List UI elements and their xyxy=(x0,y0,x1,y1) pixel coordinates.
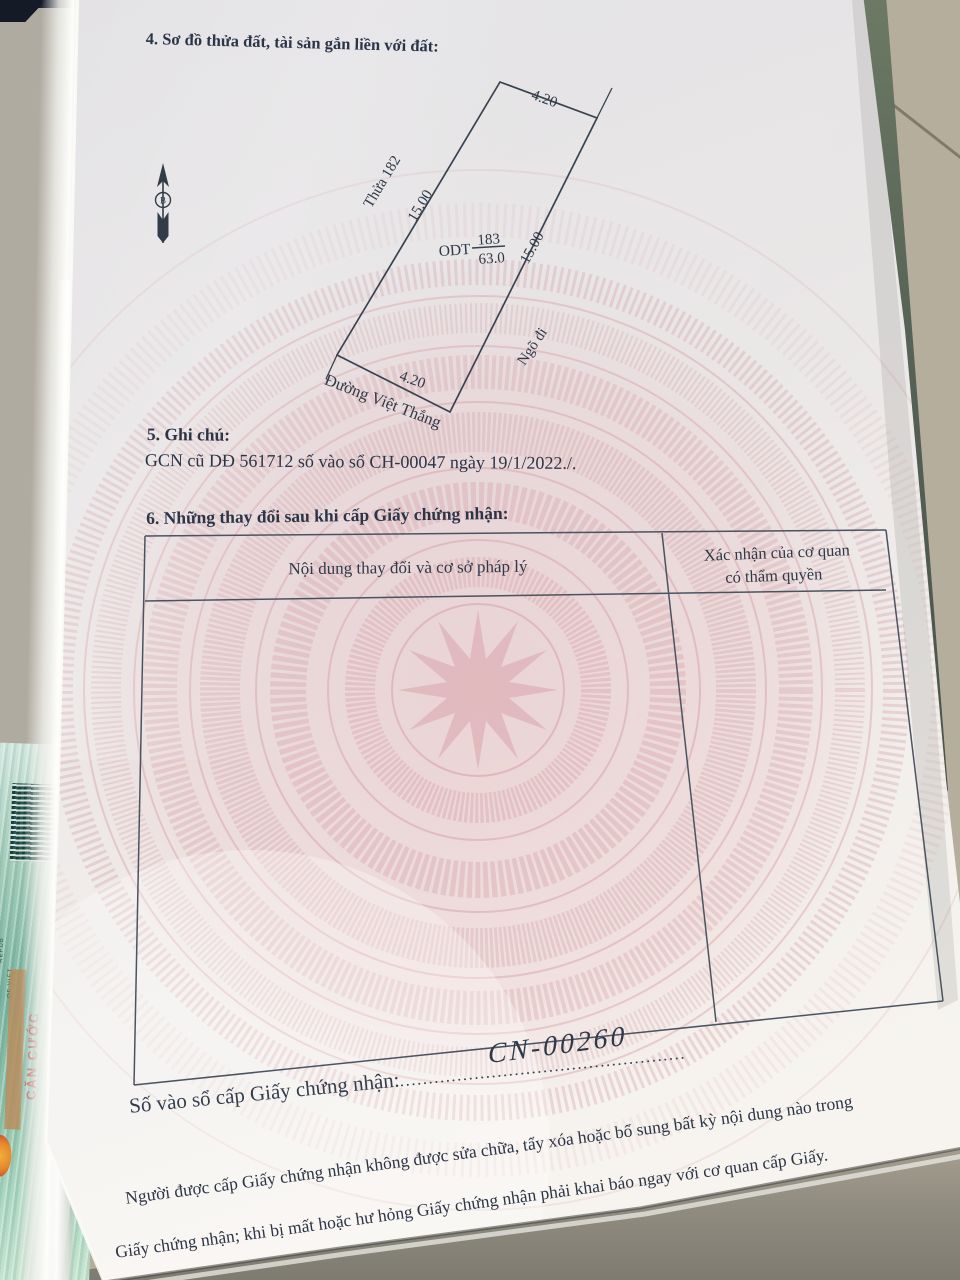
land-use-code: ODT xyxy=(438,241,471,260)
table-col1-header: Nội dung thay đổi và cơ sở pháp lý xyxy=(288,557,528,579)
table-col2-header-line2: có thẩm quyền xyxy=(725,564,823,587)
parcel-area: 63.0 xyxy=(478,250,505,268)
photo-of-land-certificate: SOCIA REPUB OF VIET CĂN CƯỚC xyxy=(0,0,960,1280)
parcel-number: 183 xyxy=(477,231,501,249)
north-label: B xyxy=(160,196,166,206)
section5-note: GCN cũ DĐ 561712 số vào sổ CH-00047 ngày… xyxy=(145,450,577,474)
certificate-page-artwork: B 4.20 Thửa 182 15.00 ODT 183 63.0 15.00… xyxy=(0,0,960,1280)
section5-heading: 5. Ghi chú: xyxy=(147,424,230,446)
